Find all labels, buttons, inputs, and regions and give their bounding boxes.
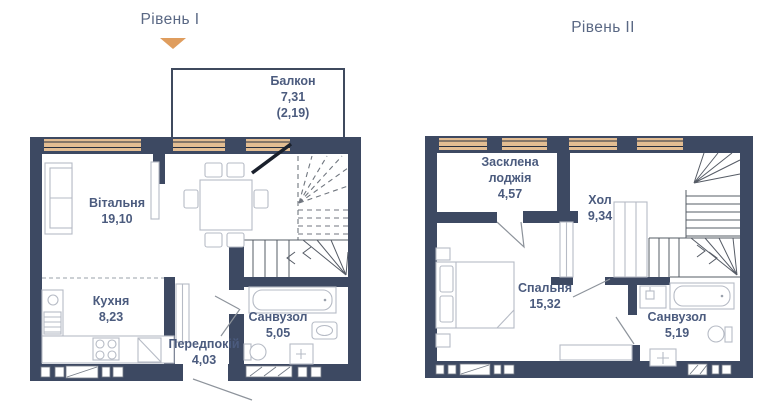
floorplan-canvas: Рівень I Рівень II Балкон 7,31 (2,19) Ві… [0,0,768,402]
washing-machine-level1 [290,344,313,364]
room-label-loggia: Засклена лоджія 4,57 [467,155,553,202]
room-area: 7,31 [270,90,315,106]
room-name: Передпокій [168,337,239,353]
bedroom-bench [560,345,632,360]
room-label-bathroom-l2: Санвузол 5,19 [647,310,706,342]
level2-stairs [649,153,740,277]
toilet-level1 [244,344,266,360]
sofa [45,163,72,234]
room-name: Балкон [270,74,315,90]
room-name: Кухня [93,294,130,310]
room-label-hall: Хол 9,34 [588,193,612,225]
bathroom-door-level2 [616,317,634,344]
sink-level2 [640,286,666,308]
hall-wardrobe [614,202,647,277]
room-area: 5,19 [647,326,706,342]
room-label-kitchen: Кухня 8,23 [93,294,130,326]
toilet-level2 [708,326,732,342]
hall-cabinet [560,222,573,277]
tv-stand [151,162,159,219]
room-name: Санвузол [248,310,307,326]
room-label-hallway: Передпокій 4,03 [168,337,239,369]
room-area: 5,05 [248,326,307,342]
room-label-bedroom: Спальня 15,32 [518,281,572,313]
room-area-alt: (2,19) [270,106,315,122]
washing-machine-level2 [650,349,676,366]
level1-stairs-upper [298,156,348,240]
bedroom-door [573,279,610,297]
sink-level1 [312,322,337,339]
level1-stairs-lower [241,240,348,277]
room-area: 19,10 [89,212,145,228]
loggia-door [497,222,524,247]
room-label-balcony: Балкон 7,31 (2,19) [270,74,315,121]
dining-table [184,163,268,247]
entrance-leader [193,379,252,400]
level1-title: Рівень I [141,11,200,29]
room-area: 4,03 [168,353,239,369]
bathtub-level2 [670,283,734,309]
room-area: 4,57 [467,187,553,203]
room-name: Спальня [518,281,572,297]
balcony-outline [172,69,344,138]
room-area: 15,32 [518,297,572,313]
level2-title: Рівень II [571,19,635,37]
room-name: Засклена лоджія [467,155,553,187]
hallway-wardrobe [176,284,189,342]
room-label-living: Вітальня 19,10 [89,196,145,228]
room-label-bathroom-l1: Санвузол 5,05 [248,310,307,342]
bathroom-door-level1 [215,296,239,309]
stove [93,338,119,360]
room-name: Санвузол [647,310,706,326]
bed [436,262,514,328]
room-name: Вітальня [89,196,145,212]
room-name: Хол [588,193,612,209]
room-area: 8,23 [93,310,130,326]
level1-marker-icon [160,38,186,49]
fridge [138,338,161,362]
room-area: 9,34 [588,209,612,225]
